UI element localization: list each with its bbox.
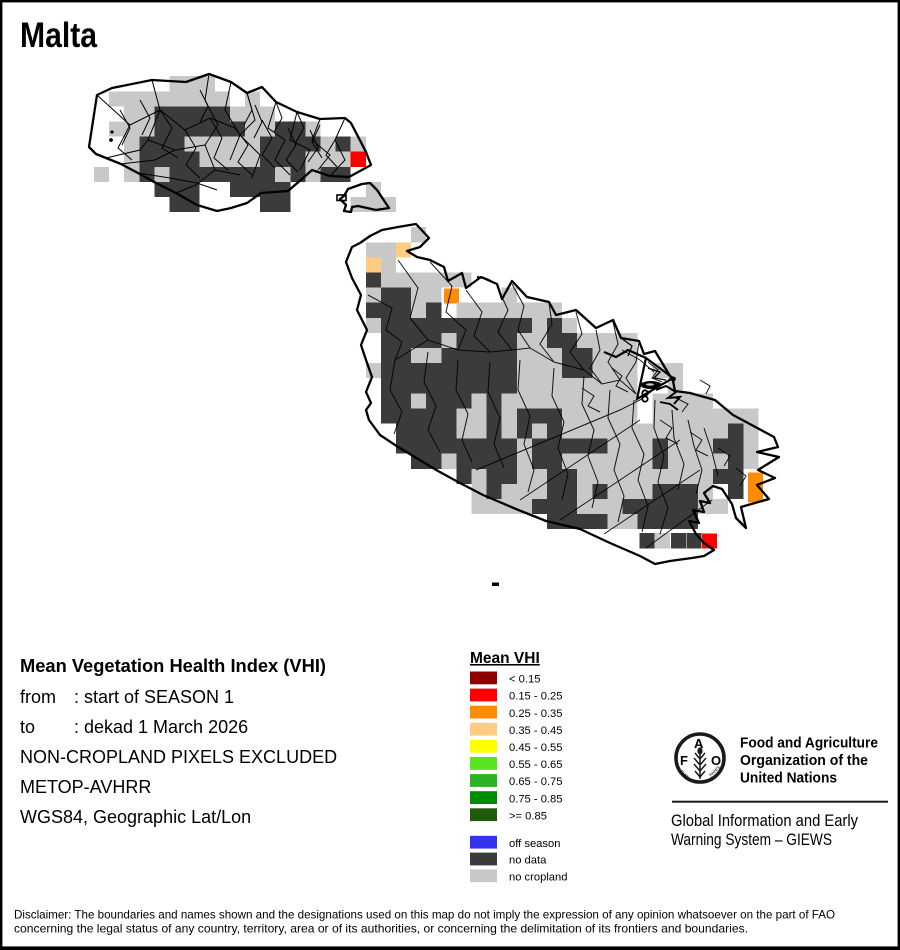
svg-text:off season: off season <box>509 838 560 850</box>
svg-text:0.25 - 0.35: 0.25 - 0.35 <box>509 708 563 720</box>
svg-text:0.55 - 0.65: 0.55 - 0.65 <box>509 759 563 771</box>
svg-text:Global Information and Early: Global Information and Early <box>671 811 858 830</box>
svg-text:United Nations: United Nations <box>740 770 837 787</box>
svg-text:to: to <box>20 717 35 737</box>
svg-text:Organization of the: Organization of the <box>740 752 868 769</box>
svg-text:Disclaimer: The boundaries and: Disclaimer: The boundaries and names sho… <box>14 909 835 922</box>
svg-text:0.15 - 0.25: 0.15 - 0.25 <box>509 691 563 703</box>
svg-text:METOP-AVHRR: METOP-AVHRR <box>20 777 151 797</box>
svg-text:>= 0.85: >= 0.85 <box>509 810 547 822</box>
svg-text:WGS84, Geographic Lat/Lon: WGS84, Geographic Lat/Lon <box>20 807 251 827</box>
svg-text:Warning System – GIEWS: Warning System – GIEWS <box>671 830 832 849</box>
svg-text:from: from <box>20 687 56 707</box>
svg-text:< 0.15: < 0.15 <box>509 674 540 686</box>
svg-text:no data: no data <box>509 855 547 867</box>
svg-text:: start of SEASON 1: : start of SEASON 1 <box>74 687 234 707</box>
svg-text:Mean Vegetation Health Index (: Mean Vegetation Health Index (VHI) <box>20 656 326 676</box>
svg-text:: dekad 1 March 2026: : dekad 1 March 2026 <box>74 717 248 737</box>
svg-text:F: F <box>680 753 688 768</box>
svg-text:Mean VHI: Mean VHI <box>470 650 540 667</box>
svg-text:0.65 - 0.75: 0.65 - 0.75 <box>509 776 563 788</box>
svg-text:Malta: Malta <box>20 16 97 55</box>
svg-text:0.45 - 0.55: 0.45 - 0.55 <box>509 742 563 754</box>
svg-text:concerning the legal status of: concerning the legal status of any count… <box>14 923 748 936</box>
svg-text:0.35 - 0.45: 0.35 - 0.45 <box>509 725 563 737</box>
svg-text:NON-CROPLAND PIXELS EXCLUDED: NON-CROPLAND PIXELS EXCLUDED <box>20 747 337 767</box>
svg-text:Food and Agriculture: Food and Agriculture <box>740 735 878 752</box>
svg-text:no cropland: no cropland <box>509 871 567 883</box>
svg-text:0.75 - 0.85: 0.75 - 0.85 <box>509 793 563 805</box>
